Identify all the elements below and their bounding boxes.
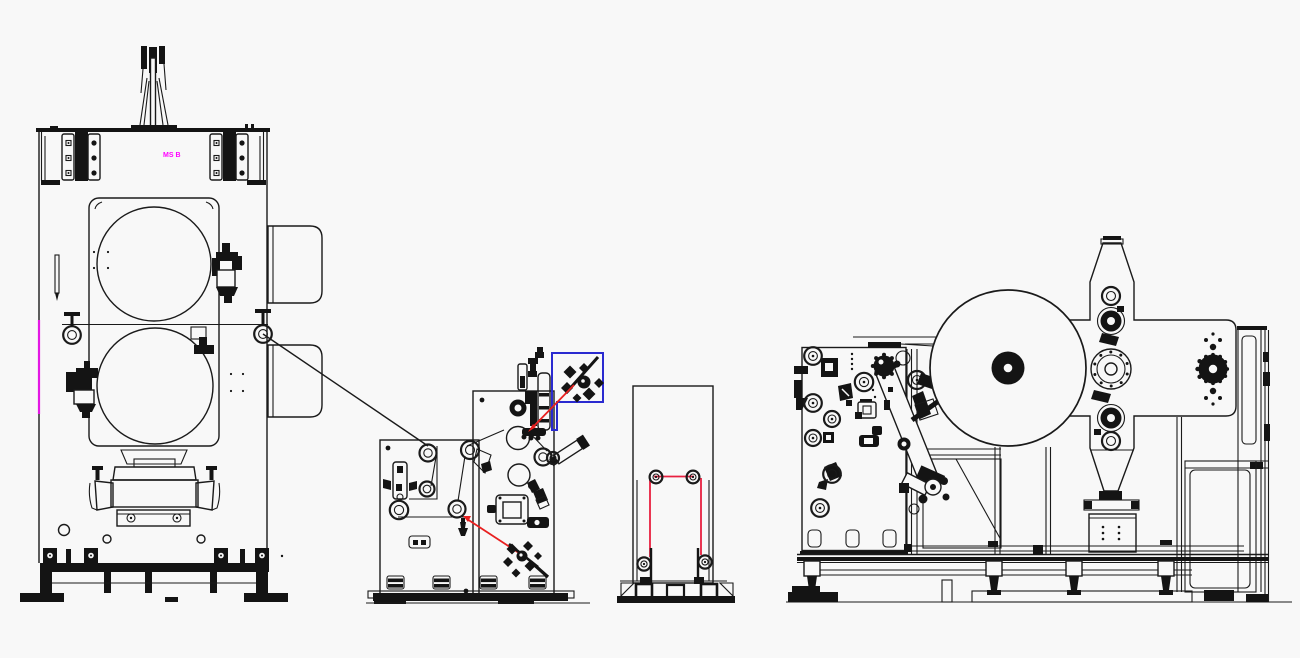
svg-text:MS B: MS B <box>163 152 181 159</box>
